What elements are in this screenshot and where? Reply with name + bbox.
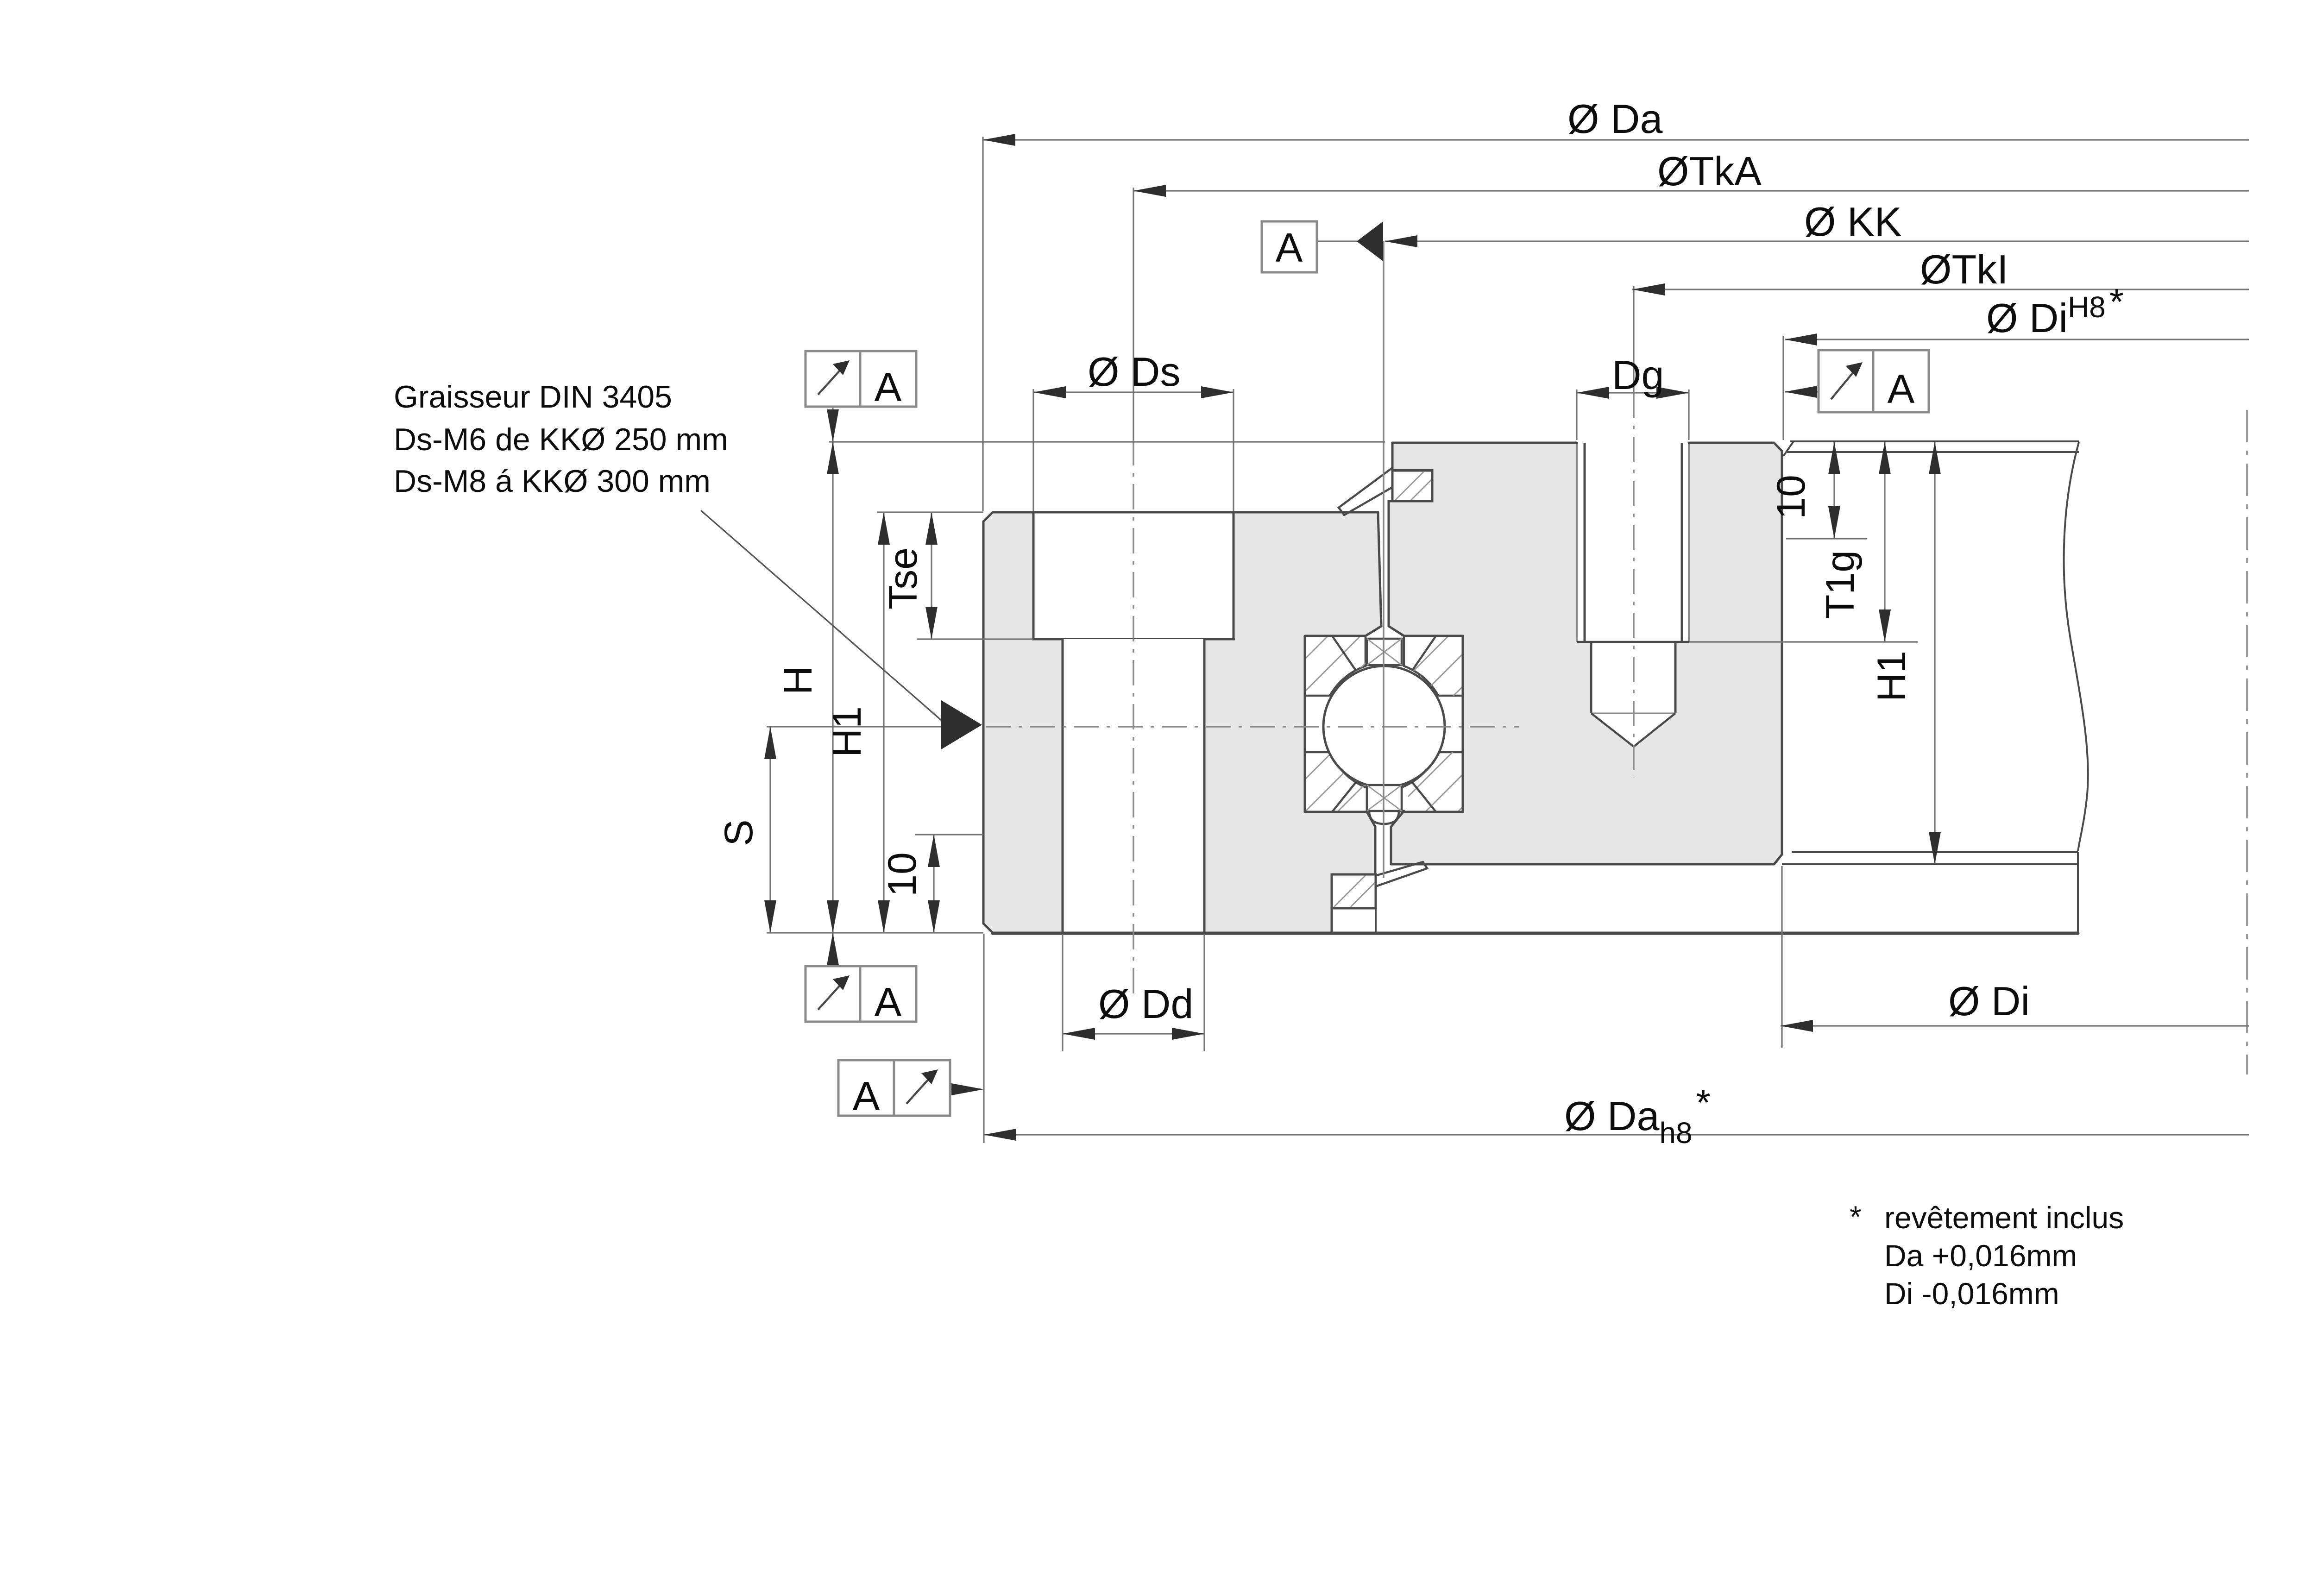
svg-text:Graisseur DIN 3405: Graisseur DIN 3405 (394, 379, 672, 415)
svg-text:Ø KK: Ø KK (1804, 199, 1901, 245)
svg-text:Tse: Tse (881, 547, 925, 609)
svg-text:Dg: Dg (1612, 352, 1664, 398)
svg-text:ØTkA: ØTkA (1657, 148, 1762, 194)
svg-text:H: H (776, 666, 820, 695)
svg-text:10: 10 (1769, 475, 1813, 519)
svg-text:A: A (1888, 366, 1915, 412)
svg-text:T1g: T1g (1818, 550, 1863, 619)
svg-text:Ø Di: Ø Di (1948, 978, 2030, 1024)
svg-text:A: A (875, 364, 902, 410)
svg-text:H1: H1 (1869, 651, 1914, 702)
svg-text:S: S (717, 819, 761, 846)
svg-text:ØTkI: ØTkI (1920, 246, 2008, 292)
svg-text:Ø Da: Ø Da (1567, 96, 1662, 142)
svg-text:H1: H1 (825, 706, 869, 757)
svg-text:A: A (1276, 225, 1303, 270)
svg-text:A: A (875, 979, 902, 1025)
svg-text:A: A (853, 1073, 880, 1119)
svg-text:revêtement inclus: revêtement inclus (1884, 1200, 2124, 1235)
svg-text:Ø Ds: Ø Ds (1088, 349, 1180, 395)
svg-text:Di -0,016mm: Di -0,016mm (1884, 1276, 2059, 1311)
svg-text:*: * (1850, 1200, 1862, 1234)
svg-text:Ds-M6 de KKØ 250 mm: Ds-M6 de KKØ 250 mm (394, 422, 728, 457)
svg-text:10: 10 (880, 852, 925, 897)
svg-text:Da +0,016mm: Da +0,016mm (1884, 1238, 2077, 1273)
svg-text:Ø Dd: Ø Dd (1098, 981, 1193, 1027)
svg-text:Ds-M8 á KKØ 300 mm: Ds-M8 á KKØ 300 mm (394, 464, 711, 499)
